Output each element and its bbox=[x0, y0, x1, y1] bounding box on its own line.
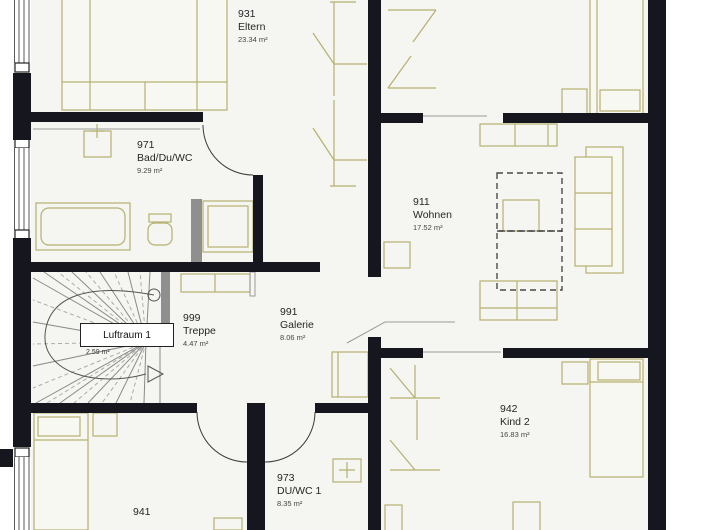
room-number: 971 bbox=[137, 139, 192, 152]
room-name: Treppe bbox=[183, 325, 216, 338]
room-number: 941 bbox=[133, 506, 151, 519]
room-label-wohnen: 911 Wohnen 17.52 m² bbox=[413, 196, 452, 233]
room-name: Bad/Du/WC bbox=[137, 152, 192, 165]
room-area: 16.83 m² bbox=[500, 429, 530, 440]
floor-plan: 931 Eltern 23.34 m² 971 Bad/Du/WC 9.29 m… bbox=[0, 0, 720, 530]
void-area-text: 2.59 m² bbox=[86, 349, 110, 356]
room-name: DU/WC 1 bbox=[277, 485, 321, 498]
room-area: 8.06 m² bbox=[280, 332, 314, 343]
room-label-eltern: 931 Eltern 23.34 m² bbox=[238, 8, 268, 45]
room-label-kind2: 942 Kind 2 16.83 m² bbox=[500, 403, 530, 440]
room-area: 9.29 m² bbox=[137, 165, 192, 176]
window-left-top bbox=[13, 0, 31, 72]
room-number: 973 bbox=[277, 472, 321, 485]
room-number: 931 bbox=[238, 8, 268, 21]
room-area: 23.34 m² bbox=[238, 34, 268, 45]
room-label-duwc1: 973 DU/WC 1 8.35 m² bbox=[277, 472, 321, 509]
room-name: Galerie bbox=[280, 319, 314, 332]
room-name: Wohnen bbox=[413, 209, 452, 222]
room-number: 942 bbox=[500, 403, 530, 416]
room-label-bad: 971 Bad/Du/WC 9.29 m² bbox=[137, 139, 192, 176]
void-label-box: Luftraum 1 bbox=[80, 323, 174, 347]
floor-plan-drawing bbox=[0, 0, 720, 530]
room-label-galerie: 991 Galerie 8.06 m² bbox=[280, 306, 314, 343]
room-number: 999 bbox=[183, 312, 216, 325]
void-label-text: Luftraum 1 bbox=[103, 330, 151, 341]
room-name: Eltern bbox=[238, 21, 268, 34]
window-left-middle bbox=[13, 139, 31, 239]
room-area: 17.52 m² bbox=[413, 222, 452, 233]
bed-eltern bbox=[62, 0, 227, 110]
room-number: 991 bbox=[280, 306, 314, 319]
room-number: 911 bbox=[413, 196, 452, 209]
room-area: 4.47 m² bbox=[183, 338, 216, 349]
window-left-bottom bbox=[13, 448, 31, 530]
room-name: Kind 2 bbox=[500, 416, 530, 429]
room-area: 8.35 m² bbox=[277, 498, 321, 509]
room-label-941: 941 bbox=[133, 506, 151, 519]
room-label-treppe: 999 Treppe 4.47 m² bbox=[183, 312, 216, 349]
